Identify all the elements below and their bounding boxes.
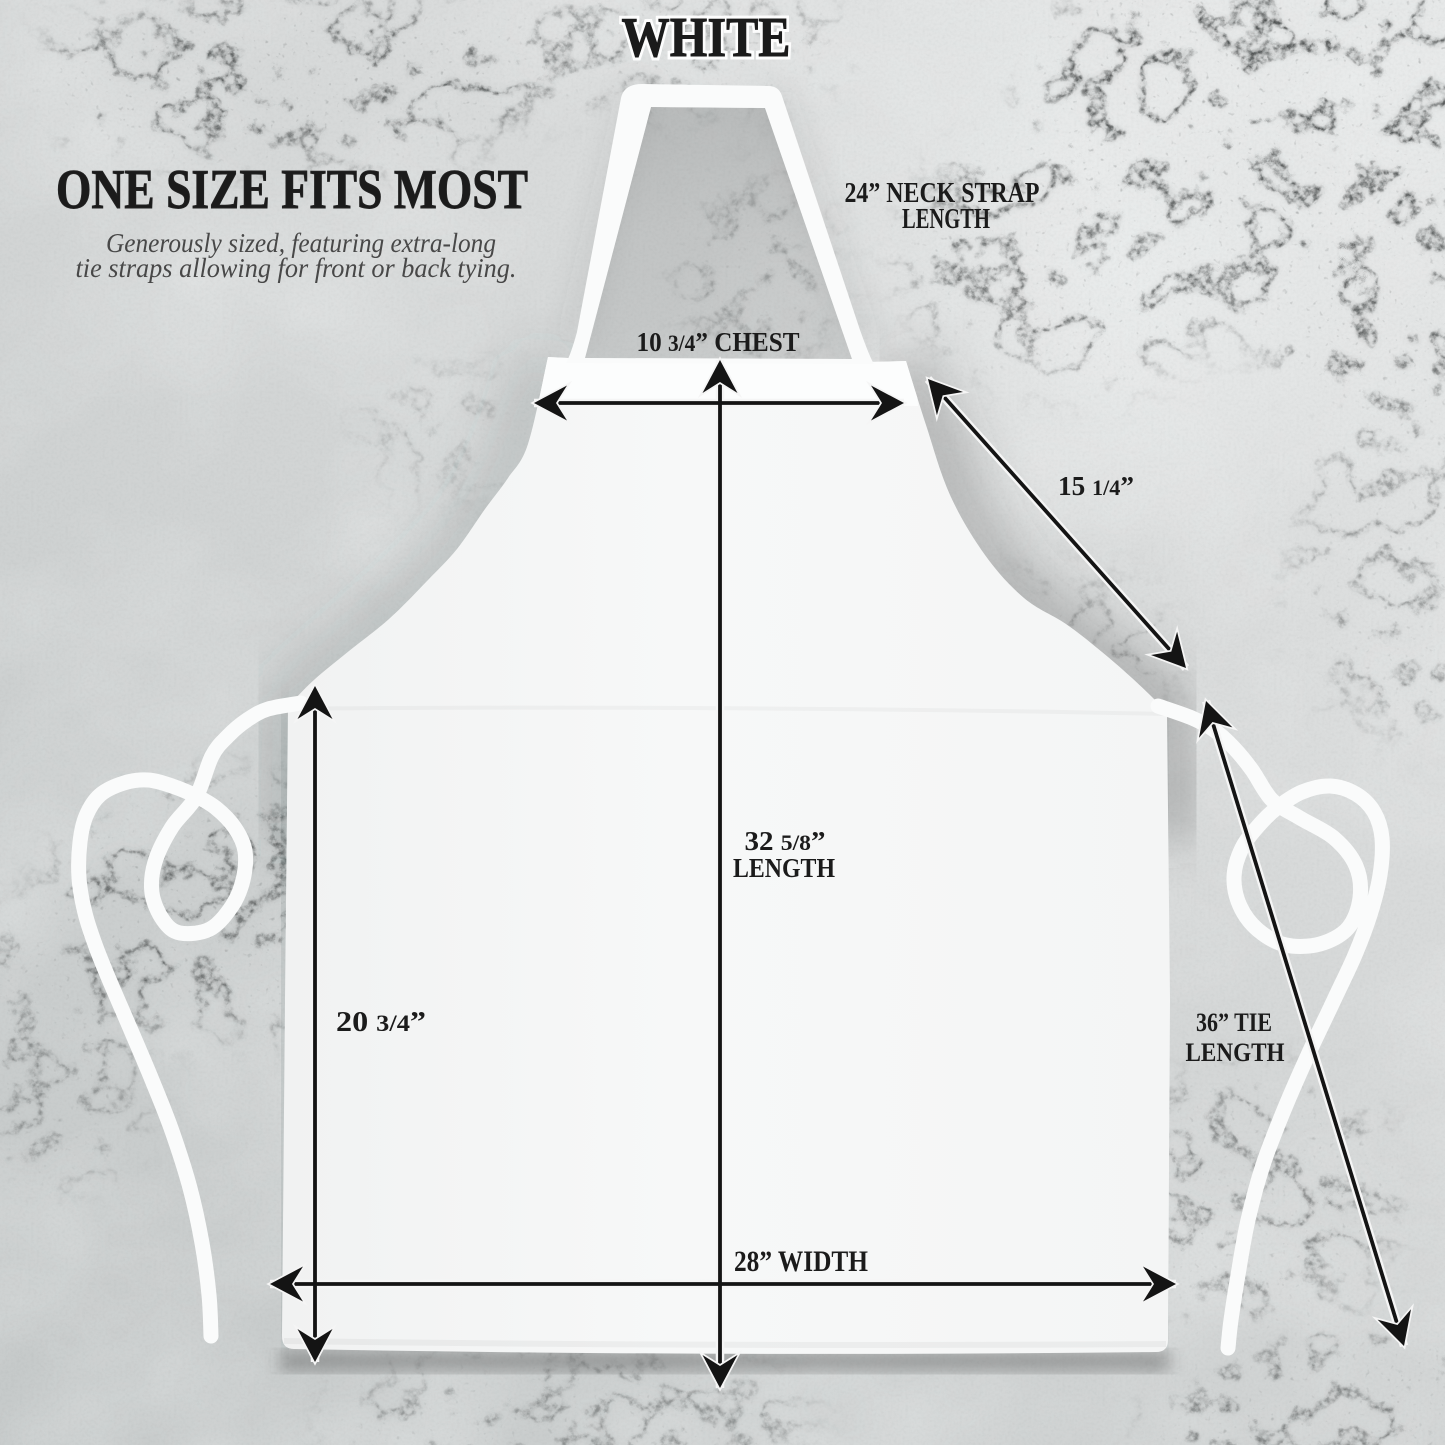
svg-text:LENGTH: LENGTH [733, 853, 835, 883]
svg-text:ONE SIZE FITS MOST: ONE SIZE FITS MOST [56, 159, 528, 221]
svg-text:15 1/4”: 15 1/4” [1058, 471, 1134, 501]
svg-text:20 3/4”: 20 3/4” [336, 1007, 426, 1038]
svg-text:WHITE: WHITE [622, 7, 791, 69]
svg-text:LENGTH: LENGTH [902, 204, 990, 235]
svg-text:36” TIE: 36” TIE [1196, 1008, 1272, 1037]
svg-text:tie straps allowing for front: tie straps allowing for front or back ty… [76, 253, 517, 283]
svg-text:LENGTH: LENGTH [1186, 1038, 1285, 1067]
svg-text:32 5/8”: 32 5/8” [745, 826, 826, 856]
svg-text:10 3/4” CHEST: 10 3/4” CHEST [637, 327, 800, 357]
svg-text:28” WIDTH: 28” WIDTH [734, 1245, 868, 1278]
